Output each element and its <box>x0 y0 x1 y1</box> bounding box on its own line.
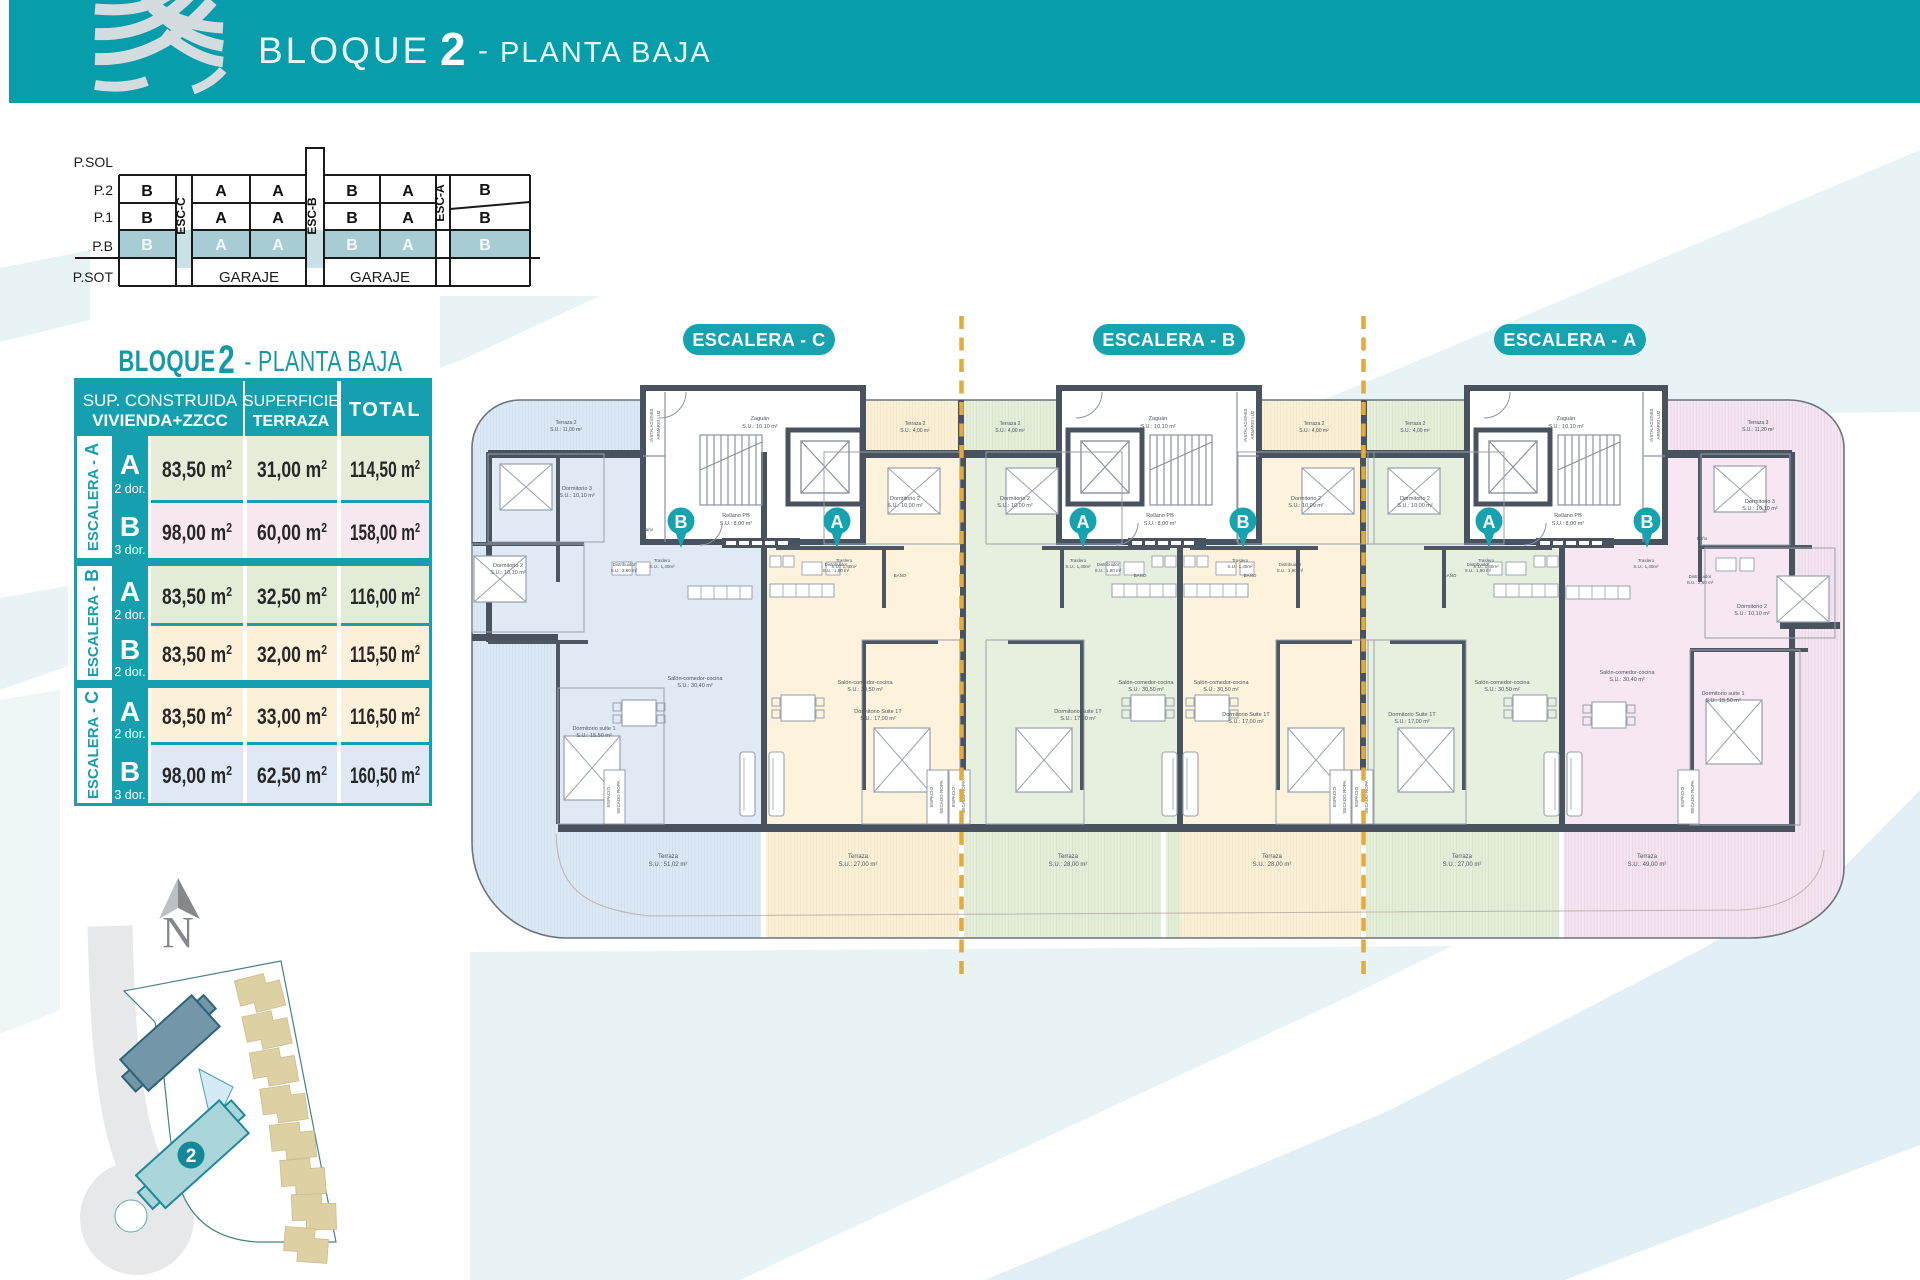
svg-text:S.U.: 10,00 m²: S.U.: 10,00 m² <box>1397 503 1433 509</box>
svg-text:S.U.: 10,10 m²: S.U.: 10,10 m² <box>490 570 526 576</box>
svg-text:116,00 m2: 116,00 m2 <box>350 584 420 609</box>
svg-text:S.U.: 28,00 m²: S.U.: 28,00 m² <box>1049 862 1088 868</box>
svg-text:A: A <box>215 210 227 227</box>
svg-text:ESPACIO: ESPACIO <box>1332 787 1337 808</box>
svg-text:SECADO ROPA: SECADO ROPA <box>1690 779 1695 813</box>
svg-text:62,50 m2: 62,50 m2 <box>257 763 327 788</box>
svg-text:INSTALACIONES: INSTALACIONES <box>1243 408 1248 441</box>
svg-text:160,50 m2: 160,50 m2 <box>350 763 420 788</box>
svg-text:ESPACIO: ESPACIO <box>1354 787 1359 808</box>
svg-text:S.U.: 1,40m²: S.U.: 1,40m² <box>1065 564 1091 569</box>
svg-text:S.U.: 4,00 m²: S.U.: 4,00 m² <box>1400 428 1430 434</box>
svg-text:B: B <box>346 210 358 227</box>
svg-text:S.U.: 30,50 m²: S.U.: 30,50 m² <box>1128 687 1164 693</box>
svg-text:Salón-comedor-cocina: Salón-comedor-cocina <box>837 680 893 686</box>
svg-text:S.U.: 8,00 m²: S.U.: 8,00 m² <box>1144 521 1177 527</box>
svg-text:ESPACIO: ESPACIO <box>929 787 934 808</box>
svg-text:S.U.: 27,00 m²: S.U.: 27,00 m² <box>1443 862 1482 868</box>
svg-text:B: B <box>1237 512 1250 532</box>
svg-text:ESCALERA - B: ESCALERA - B <box>82 569 102 677</box>
svg-text:83,50 m2: 83,50 m2 <box>162 704 232 729</box>
svg-text:Salón-comedor-cocina: Salón-comedor-cocina <box>1474 680 1530 686</box>
svg-text:Traslero: Traslero <box>1478 558 1495 563</box>
svg-text:TOTAL: TOTAL <box>349 399 421 421</box>
svg-text:83,50 m2: 83,50 m2 <box>162 584 232 609</box>
svg-text:S.U.: 2,60 m²: S.U.: 2,60 m² <box>611 568 638 573</box>
svg-text:S.U.: 28,00 m²: S.U.: 28,00 m² <box>1253 862 1292 868</box>
svg-text:B: B <box>479 182 491 199</box>
svg-text:S.U.: 17,00 m²: S.U.: 17,00 m² <box>1060 716 1096 722</box>
svg-text:Dormitorio 3: Dormitorio 3 <box>1745 499 1775 505</box>
svg-text:2 dor.: 2 dor. <box>114 727 145 741</box>
svg-text:A: A <box>215 183 227 200</box>
svg-text:2: 2 <box>186 1146 197 1167</box>
svg-text:S.U.: 10,00 m²: S.U.: 10,00 m² <box>997 503 1033 509</box>
svg-text:158,00 m2: 158,00 m2 <box>350 520 420 545</box>
svg-text:INSTALACIONES: INSTALACIONES <box>1649 408 1654 441</box>
svg-text:B: B <box>479 237 491 254</box>
svg-text:A: A <box>1077 512 1090 532</box>
svg-text:A: A <box>272 237 284 254</box>
svg-text:S.U.: 1,40m²: S.U.: 1,40m² <box>1227 564 1253 569</box>
svg-text:S.U.: 10,10 m²: S.U.: 10,10 m² <box>1140 424 1176 430</box>
svg-text:S.U.: 4,00 m²: S.U.: 4,00 m² <box>995 428 1025 434</box>
svg-text:Dormitorio Suite 1T: Dormitorio Suite 1T <box>854 709 902 715</box>
svg-text:ESCALERA - C: ESCALERA - C <box>82 691 102 799</box>
svg-text:B: B <box>675 512 688 532</box>
svg-text:BAÑO: BAÑO <box>1444 572 1457 578</box>
svg-text:S.U.: 30,50 m²: S.U.: 30,50 m² <box>1484 687 1520 693</box>
svg-text:S.U.: 2,60 m²: S.U.: 2,60 m² <box>1687 580 1714 585</box>
svg-text:BLOQUE: BLOQUE <box>258 30 430 71</box>
svg-text:2 dor.: 2 dor. <box>114 665 145 679</box>
svg-text:S.U.: 10,10 m²: S.U.: 10,10 m² <box>1734 611 1770 617</box>
svg-text:Dormitorio suite 1: Dormitorio suite 1 <box>572 726 615 732</box>
svg-text:P.SOL: P.SOL <box>74 154 114 170</box>
svg-text:S.U.: 8,00 m²: S.U.: 8,00 m² <box>1552 521 1585 527</box>
svg-text:Traslero: Traslero <box>836 558 853 563</box>
svg-text:Distribuidor: Distribuidor <box>1689 574 1712 579</box>
svg-text:S.U.: 1,90 m²: S.U.: 1,90 m² <box>1277 568 1304 573</box>
svg-text:S.U.: 4,00 m²: S.U.: 4,00 m² <box>900 428 930 434</box>
svg-text:S.U.: 1,40m²: S.U.: 1,40m² <box>1473 564 1499 569</box>
svg-text:A: A <box>120 449 140 480</box>
svg-text:Salón-comedor-cocina: Salón-comedor-cocina <box>667 676 723 682</box>
svg-text:A: A <box>120 576 140 607</box>
svg-text:P.1: P.1 <box>94 209 113 225</box>
svg-text:2 dor.: 2 dor. <box>114 482 145 496</box>
svg-text:Zaguán: Zaguán <box>1149 416 1168 422</box>
svg-text:BAÑO: BAÑO <box>1244 572 1257 578</box>
svg-text:114,50 m2: 114,50 m2 <box>350 457 420 482</box>
svg-text:S.U.: 1,40m²: S.U.: 1,40m² <box>1633 564 1659 569</box>
svg-text:GARAJE: GARAJE <box>350 269 410 286</box>
svg-text:83,50 m2: 83,50 m2 <box>162 457 232 482</box>
svg-text:S.U.: 1,90 m²: S.U.: 1,90 m² <box>1095 568 1122 573</box>
svg-text:B: B <box>120 634 140 665</box>
svg-text:B: B <box>120 756 140 787</box>
svg-text:S.U.: 1,40m²: S.U.: 1,40m² <box>831 564 857 569</box>
svg-text:Distribuidor: Distribuidor <box>1279 562 1302 567</box>
svg-text:Zaguán: Zaguán <box>751 416 770 422</box>
svg-text:S.U.: 4,00 m²: S.U.: 4,00 m² <box>1299 428 1329 434</box>
svg-text:Rellano PB: Rellano PB <box>1554 513 1582 519</box>
svg-text:P.2: P.2 <box>94 182 113 198</box>
svg-text:S.U.: 49,00 m²: S.U.: 49,00 m² <box>1628 862 1667 868</box>
svg-text:S.U.: 10,10 m²: S.U.: 10,10 m² <box>559 493 595 499</box>
svg-text:Dormitorio 3: Dormitorio 3 <box>562 486 592 492</box>
svg-text:S.U.: 8,00 m²: S.U.: 8,00 m² <box>720 521 753 527</box>
svg-text:Dormitorio 2: Dormitorio 2 <box>890 496 920 502</box>
svg-text:GARAJE: GARAJE <box>219 269 279 286</box>
svg-text:Terraza 3: Terraza 3 <box>1748 420 1769 426</box>
svg-text:S.U.: 27,00 m²: S.U.: 27,00 m² <box>839 862 878 868</box>
svg-text:Terraza 2: Terraza 2 <box>556 420 577 426</box>
svg-text:Baño: Baño <box>643 527 654 532</box>
svg-text:P.B: P.B <box>92 238 113 254</box>
svg-text:ESPACIO: ESPACIO <box>606 787 611 808</box>
svg-text:S.U.: 17,00 m²: S.U.: 17,00 m² <box>1394 719 1430 725</box>
svg-text:3 dor.: 3 dor. <box>114 543 145 557</box>
svg-text:Zaguán: Zaguán <box>1557 416 1576 422</box>
svg-text:Dormitorio 2: Dormitorio 2 <box>1291 496 1321 502</box>
svg-text:2: 2 <box>218 338 234 382</box>
svg-text:Dormitorio 2: Dormitorio 2 <box>1737 604 1767 610</box>
svg-text:A: A <box>1483 512 1496 532</box>
svg-text:S.U.: 30,40 m²: S.U.: 30,40 m² <box>1609 677 1645 683</box>
svg-text:2: 2 <box>440 23 466 75</box>
svg-text:ESC-B: ESC-B <box>305 197 319 235</box>
svg-text:P.SOT: P.SOT <box>73 269 114 285</box>
svg-text:Dormitorio 2: Dormitorio 2 <box>1400 496 1430 502</box>
svg-text:B: B <box>120 511 140 542</box>
svg-text:BAÑO: BAÑO <box>894 572 907 578</box>
svg-text:Dormitorio Suite 1T: Dormitorio Suite 1T <box>1222 712 1270 718</box>
svg-text:32,00 m2: 32,00 m2 <box>257 642 327 667</box>
svg-text:ESC-C: ESC-C <box>174 197 188 235</box>
svg-text:ESCALERA - A: ESCALERA - A <box>82 443 102 551</box>
svg-text:A: A <box>402 237 414 254</box>
svg-text:S.U.: 10,10 m²: S.U.: 10,10 m² <box>1742 506 1778 512</box>
svg-text:32,50 m2: 32,50 m2 <box>257 584 327 609</box>
svg-text:A: A <box>831 512 844 532</box>
svg-text:S.U.: 15,50 m²: S.U.: 15,50 m² <box>1705 698 1741 704</box>
svg-text:Terraza: Terraza <box>1637 854 1658 860</box>
svg-text:SUPERFICIE: SUPERFICIE <box>243 393 339 410</box>
svg-text:S.U.: 10,10 m²: S.U.: 10,10 m² <box>742 424 778 430</box>
svg-text:S.U.: 17,00 m²: S.U.: 17,00 m² <box>1228 719 1264 725</box>
svg-text:Dormitorio 2: Dormitorio 2 <box>493 563 523 569</box>
svg-text:S.U.: 10,10 m²: S.U.: 10,10 m² <box>1548 424 1584 430</box>
svg-text:B: B <box>141 237 153 254</box>
svg-text:ESPACIO: ESPACIO <box>951 787 956 808</box>
svg-text:BAÑO: BAÑO <box>1134 572 1147 578</box>
svg-text:ESC-A: ESC-A <box>433 184 447 222</box>
svg-text:115,50 m2: 115,50 m2 <box>350 642 420 667</box>
svg-text:Dormitorio Suite 1T: Dormitorio Suite 1T <box>1054 709 1102 715</box>
svg-text:2 dor.: 2 dor. <box>114 608 145 622</box>
svg-text:B: B <box>141 210 153 227</box>
svg-text:A: A <box>402 210 414 227</box>
svg-text:VIVIENDA+ZZCC: VIVIENDA+ZZCC <box>92 411 228 430</box>
svg-text:S.U.: 17,00 m²: S.U.: 17,00 m² <box>860 716 896 722</box>
svg-text:TERRAZA: TERRAZA <box>253 413 330 430</box>
svg-text:ARMARIO LUZ: ARMARIO LUZ <box>656 410 661 439</box>
svg-text:ESCALERA - B: ESCALERA - B <box>1102 330 1235 350</box>
svg-text:3 dor.: 3 dor. <box>114 788 145 802</box>
svg-text:S.U.: 11,20 m²: S.U.: 11,20 m² <box>1742 427 1774 433</box>
svg-text:Terraza: Terraza <box>1058 854 1079 860</box>
svg-text:Dormitorio 2: Dormitorio 2 <box>1000 496 1030 502</box>
svg-text:Distribuidor: Distribuidor <box>613 562 636 567</box>
svg-text:S.U.: 51,02 m²: S.U.: 51,02 m² <box>649 862 688 868</box>
svg-text:SECADO ROPA: SECADO ROPA <box>939 779 944 813</box>
svg-text:SUP. CONSTRUIDA: SUP. CONSTRUIDA <box>83 391 238 410</box>
svg-text:B: B <box>346 183 358 200</box>
svg-text:Dormitorio suite 1: Dormitorio suite 1 <box>1701 691 1744 697</box>
svg-text:PLANTA BAJA: PLANTA BAJA <box>500 37 712 69</box>
svg-text:S.U.: 30,50 m²: S.U.: 30,50 m² <box>847 687 883 693</box>
svg-text:A: A <box>272 183 284 200</box>
svg-text:Terraza: Terraza <box>658 854 679 860</box>
svg-text:33,00 m2: 33,00 m2 <box>257 704 327 729</box>
svg-text:S.U.: 10,00 m²: S.U.: 10,00 m² <box>887 503 923 509</box>
svg-text:Rellano PB: Rellano PB <box>722 513 750 519</box>
svg-text:Traslero: Traslero <box>1638 558 1655 563</box>
svg-text:Salón-comedor-cocina: Salón-comedor-cocina <box>1193 680 1249 686</box>
svg-text:SECADO ROPA: SECADO ROPA <box>616 779 621 813</box>
svg-text:S.U.: 15,50 m²: S.U.: 15,50 m² <box>576 733 612 739</box>
svg-text:B: B <box>479 210 491 227</box>
svg-text:S.U.: 10,00 m²: S.U.: 10,00 m² <box>1288 503 1324 509</box>
svg-text:Terraza: Terraza <box>1452 854 1473 860</box>
svg-text:ESPACIO: ESPACIO <box>1680 787 1685 808</box>
svg-text:Rellano PB: Rellano PB <box>1146 513 1174 519</box>
svg-text:N: N <box>162 908 194 957</box>
svg-text:S.U.: 30,40 m²: S.U.: 30,40 m² <box>677 683 713 689</box>
svg-text:SECADO ROPA: SECADO ROPA <box>1342 779 1347 813</box>
svg-text:A: A <box>215 237 227 254</box>
svg-text:Terraza: Terraza <box>848 854 869 860</box>
svg-text:S.U.: 30,50 m²: S.U.: 30,50 m² <box>1203 687 1239 693</box>
svg-text:Terraza 2: Terraza 2 <box>1405 421 1426 427</box>
svg-text:BLOQUE: BLOQUE <box>118 344 215 378</box>
svg-text:98,00 m2: 98,00 m2 <box>162 520 232 545</box>
svg-text:Traslero: Traslero <box>1232 558 1249 563</box>
svg-text:ESCALERA - C: ESCALERA - C <box>692 330 825 350</box>
svg-text:Distribuidor: Distribuidor <box>1097 562 1120 567</box>
svg-text:98,00 m2: 98,00 m2 <box>162 763 232 788</box>
svg-text:B: B <box>1641 512 1654 532</box>
svg-text:Dormitorio Suite 1T: Dormitorio Suite 1T <box>1388 712 1436 718</box>
svg-text:S.U.: 11,00 m²: S.U.: 11,00 m² <box>550 427 582 433</box>
svg-text:A: A <box>120 696 140 727</box>
svg-text:S.U.: 1,40m²: S.U.: 1,40m² <box>649 564 675 569</box>
svg-text:ARMARIO LUZ: ARMARIO LUZ <box>1656 410 1661 439</box>
svg-text:Traslero: Traslero <box>1070 558 1087 563</box>
svg-text:A: A <box>272 210 284 227</box>
svg-text:Terraza: Terraza <box>1262 854 1283 860</box>
svg-text:INSTALACIONES: INSTALACIONES <box>649 408 654 441</box>
svg-text:Baño: Baño <box>1697 536 1708 541</box>
svg-text:B: B <box>141 183 153 200</box>
svg-text:Terraza 2: Terraza 2 <box>1304 421 1325 427</box>
svg-text:Salón-comedor-cocina: Salón-comedor-cocina <box>1599 670 1655 676</box>
svg-text:60,00 m2: 60,00 m2 <box>257 520 327 545</box>
svg-text:Terraza 2: Terraza 2 <box>1000 421 1021 427</box>
svg-text:-: - <box>478 34 488 67</box>
svg-text:Traslero: Traslero <box>654 558 671 563</box>
svg-text:Salón-comedor-cocina: Salón-comedor-cocina <box>1118 680 1174 686</box>
svg-text:Terraza 2: Terraza 2 <box>905 421 926 427</box>
svg-text:83,50 m2: 83,50 m2 <box>162 642 232 667</box>
svg-text:A: A <box>402 183 414 200</box>
svg-text:B: B <box>346 237 358 254</box>
svg-text:ARMARIO LUZ: ARMARIO LUZ <box>1250 410 1255 439</box>
svg-text:ESCALERA - A: ESCALERA - A <box>1503 330 1636 350</box>
svg-text:- PLANTA BAJA: - PLANTA BAJA <box>244 346 402 378</box>
svg-text:116,50 m2: 116,50 m2 <box>350 704 420 729</box>
svg-text:31,00 m2: 31,00 m2 <box>257 457 327 482</box>
